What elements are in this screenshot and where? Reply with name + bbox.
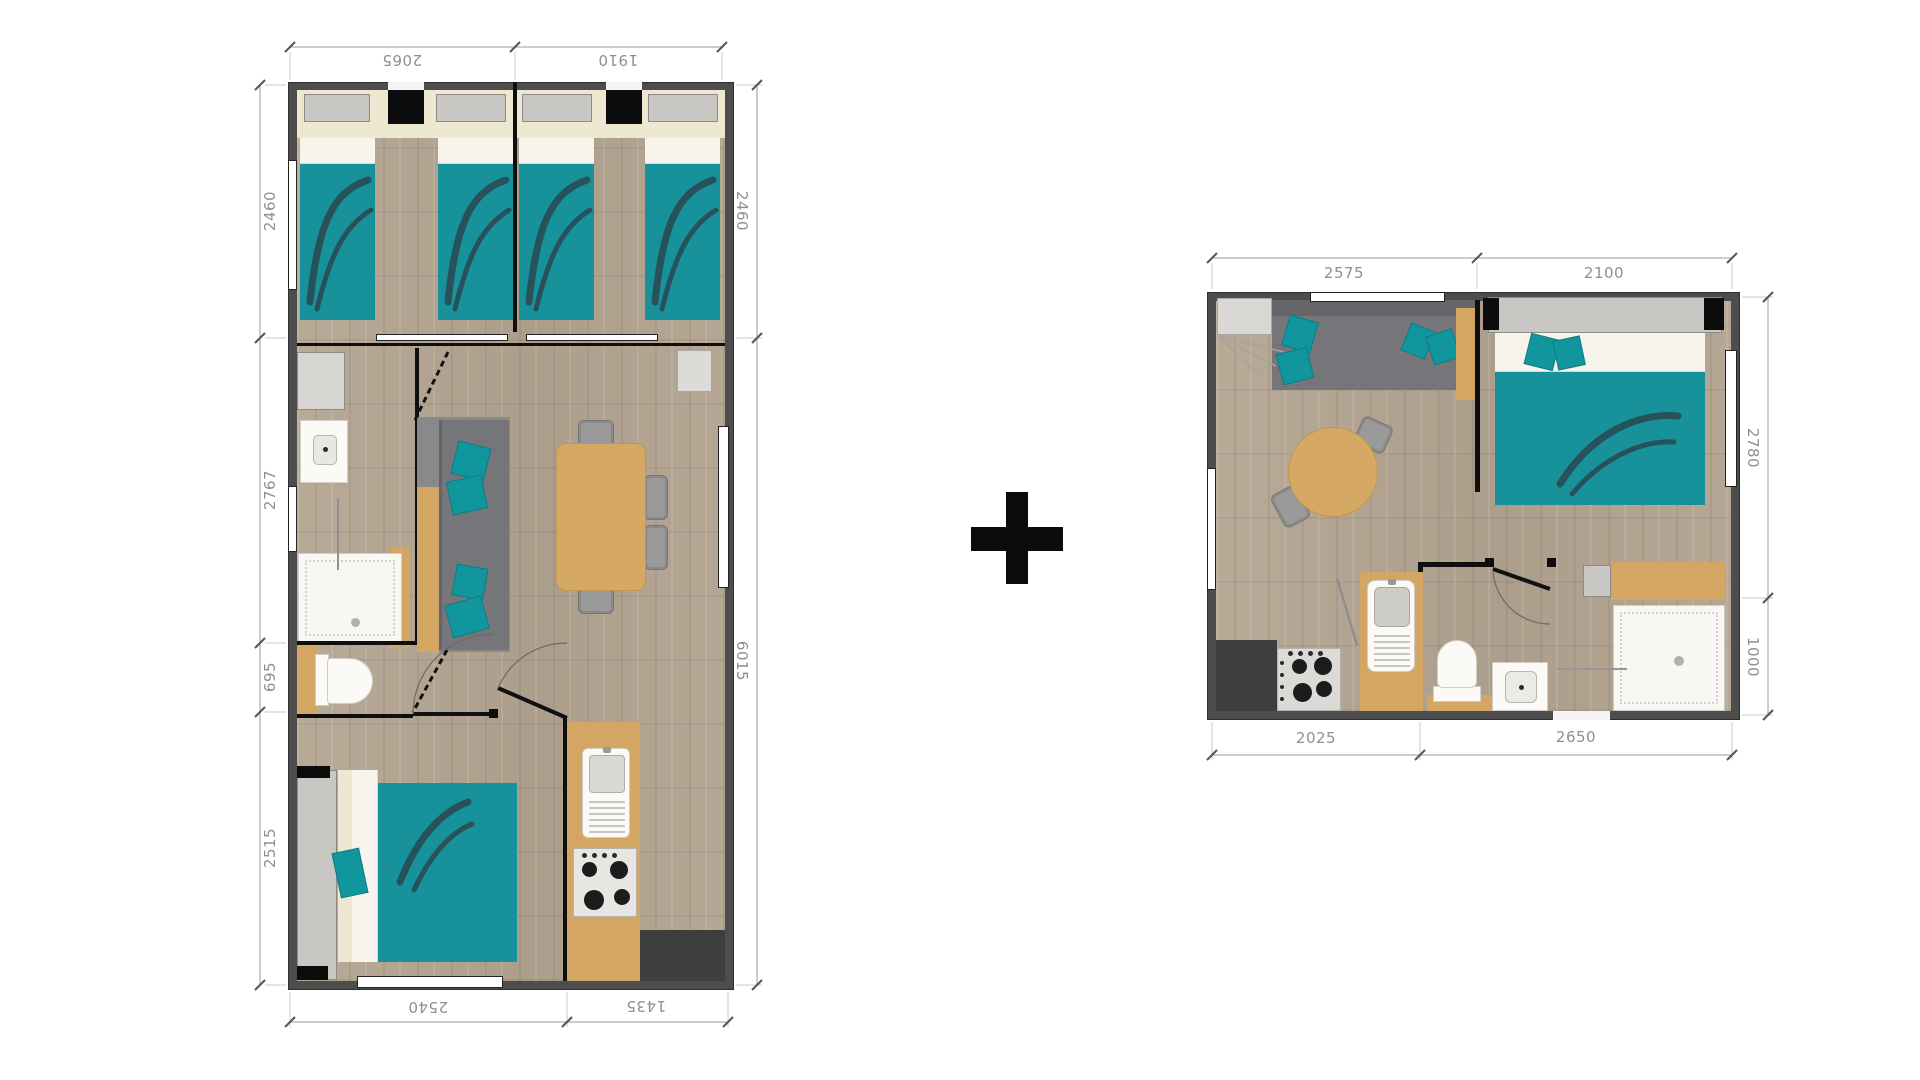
toilet-bowl <box>1437 640 1477 688</box>
kitchen-dark-counter <box>640 930 725 981</box>
dim-label: 1435 <box>626 997 666 1015</box>
plus-icon <box>971 492 1063 584</box>
burner <box>582 862 597 877</box>
stove-knob <box>592 853 597 858</box>
dim-label: 2767 <box>261 470 279 510</box>
sink-drainer <box>1374 633 1410 667</box>
bottom-wall-window <box>357 976 503 988</box>
sink-drainer <box>589 799 625 833</box>
top-wall-window <box>1310 292 1445 302</box>
headboard-window <box>522 94 592 122</box>
bathroom-cabinet <box>1611 562 1725 600</box>
dim-label: 2460 <box>733 191 751 231</box>
dim-label: 2460 <box>261 191 279 231</box>
nightstand <box>606 90 642 124</box>
headboard-shelf <box>1488 297 1722 333</box>
dim-label: 2540 <box>408 998 448 1016</box>
shower-tray <box>1613 605 1725 711</box>
dining-chair <box>644 475 668 520</box>
sofa-cushion <box>451 563 488 600</box>
burner <box>614 889 630 905</box>
left-wall-window <box>288 160 297 290</box>
floor-plans-canvas: 2065 1910 2460 2767 695 2515 2460 6015 2… <box>0 0 1920 1080</box>
wc-wall <box>297 714 413 718</box>
bed-pillow <box>300 138 375 164</box>
gas-stove <box>1277 648 1341 711</box>
towel-rail <box>1557 668 1627 670</box>
bedroom-living-wall <box>297 343 725 346</box>
dim-label: 1000 <box>1744 637 1762 677</box>
toilet-tank <box>1433 686 1481 702</box>
double-bed <box>1495 372 1705 505</box>
sliding-door <box>376 334 508 341</box>
top-wall-window <box>606 82 642 90</box>
single-bed <box>300 164 375 320</box>
right-wall-window <box>1725 350 1737 487</box>
burner <box>584 890 604 910</box>
dim-label: 2515 <box>261 828 279 868</box>
door-hinge <box>1547 558 1556 567</box>
shower-tray-rim <box>305 560 395 636</box>
shower-drain <box>1674 656 1684 666</box>
burner <box>610 861 628 879</box>
living-wardrobe <box>677 350 712 392</box>
headboard-window <box>436 94 506 122</box>
bathroom-wall <box>1418 562 1488 567</box>
bedroom-partition-wall <box>1475 300 1480 492</box>
tv-unit <box>297 766 330 778</box>
bottom-wall-window <box>1553 711 1610 720</box>
nightstand <box>1704 298 1724 330</box>
sliding-door <box>526 334 658 341</box>
nightstand <box>388 90 424 124</box>
single-bed <box>438 164 513 320</box>
burner <box>1314 657 1332 675</box>
headboard-window <box>304 94 370 122</box>
dim-label: 2780 <box>1744 428 1762 468</box>
dim-label: 2100 <box>1584 264 1624 282</box>
burner <box>1292 659 1307 674</box>
kitchen-sink <box>582 748 630 838</box>
left-wall-window <box>288 486 297 552</box>
plus-horizontal-bar <box>971 527 1063 551</box>
stove-knob <box>1318 651 1323 656</box>
stove-knob <box>1280 685 1284 689</box>
shower-tray-rim <box>1620 612 1718 704</box>
stove-knob <box>1280 673 1284 677</box>
dim-label: 2575 <box>1324 264 1364 282</box>
bed-pillow <box>438 138 513 164</box>
dim-label: 2065 <box>382 51 422 69</box>
wc-counter <box>297 645 317 716</box>
headboard-window <box>648 94 718 122</box>
dim-label: 695 <box>261 662 279 692</box>
stove-knob <box>582 853 587 858</box>
master-bed <box>378 783 517 962</box>
floor-plan-small <box>1207 292 1740 720</box>
stove-knob <box>1280 697 1284 701</box>
kitchen-dark-counter <box>1216 640 1277 711</box>
burner <box>1293 683 1312 702</box>
shower-tray <box>298 553 402 643</box>
washbasin-drain <box>1519 685 1524 690</box>
dim-label: 2650 <box>1556 728 1596 746</box>
master-wardrobe <box>297 770 337 980</box>
stove-knob <box>1288 651 1293 656</box>
bathroom-cabinet <box>297 352 345 410</box>
dim-label: 6015 <box>733 641 751 681</box>
single-bed <box>645 164 720 320</box>
dining-chair <box>644 525 668 570</box>
sofa-side-table <box>417 487 439 652</box>
single-bed <box>519 164 594 320</box>
door-hinge <box>1485 558 1494 567</box>
burner <box>1316 681 1332 697</box>
gas-stove <box>573 848 637 917</box>
dining-table <box>556 443 646 591</box>
sink-basin <box>589 755 625 793</box>
dim-label: 2025 <box>1296 729 1336 747</box>
bedroom-partition-wall <box>513 82 517 332</box>
sink-faucet <box>1388 579 1396 585</box>
nightstand <box>1483 298 1499 330</box>
stove-knob <box>1308 651 1313 656</box>
washbasin <box>1492 662 1548 711</box>
stove-knob <box>612 853 617 858</box>
bed-pillow <box>519 138 594 164</box>
floor-plan-large <box>288 82 734 990</box>
bed-cushion <box>1552 335 1586 370</box>
round-table <box>1288 427 1378 517</box>
shower-drain <box>351 618 360 627</box>
corner-cabinet <box>1217 298 1272 335</box>
top-wall-window <box>388 82 424 90</box>
left-wall-window <box>1207 468 1216 590</box>
bathroom-shelf <box>1583 565 1611 597</box>
sink-faucet <box>603 747 611 753</box>
kitchen-sink <box>1367 580 1415 672</box>
toilet-bowl <box>327 658 373 704</box>
stove-knob <box>1280 661 1284 665</box>
tv-unit <box>297 966 328 980</box>
bed-pillow <box>645 138 720 164</box>
stove-knob <box>602 853 607 858</box>
right-wall-window <box>718 426 729 588</box>
dim-label: 1910 <box>598 51 638 69</box>
stove-knob <box>1298 651 1303 656</box>
sink-basin <box>1374 587 1410 627</box>
sofa-back <box>1272 300 1478 316</box>
washbasin <box>300 420 348 483</box>
washbasin-drain <box>323 447 328 452</box>
